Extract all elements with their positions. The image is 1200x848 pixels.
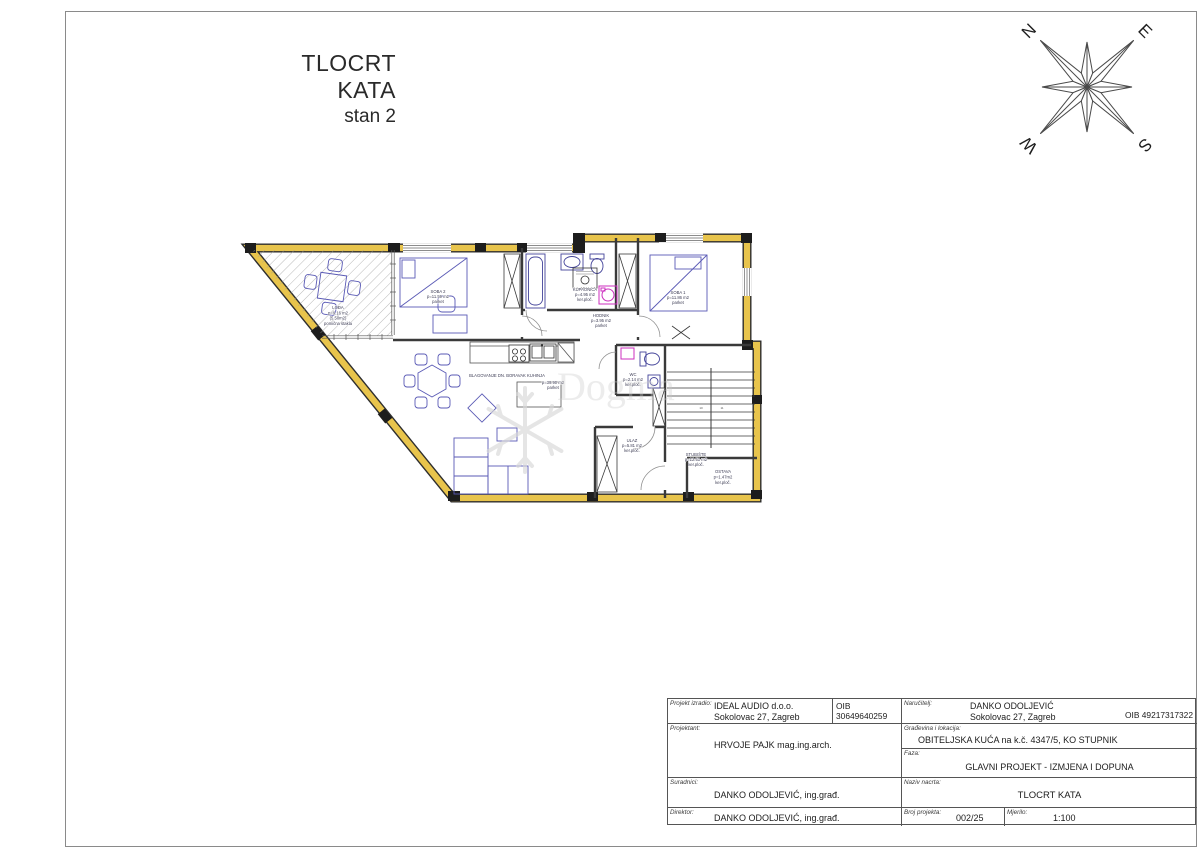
svg-text:parket: parket — [672, 300, 684, 305]
svg-text:pomična stakla: pomična stakla — [324, 321, 353, 326]
cell-projektant: Projektant: HRVOJE PAJK mag.ing.arch. — [668, 724, 902, 778]
compass-west-label: W — [1017, 133, 1042, 158]
cell-oib-izradio: OIB 30649640259 — [833, 699, 902, 724]
cell-naziv-nacrta: Naziv nacrta: TLOCRT KATA — [902, 778, 1197, 808]
loggia — [252, 250, 396, 340]
stair-number-1: 10 — [699, 406, 703, 410]
svg-text:parket: parket — [432, 299, 444, 304]
cell-broj-projekta: Broj projekta: 002/25 — [902, 808, 1005, 826]
room-label-ostava: OSTAVA — [715, 469, 731, 474]
cell-suradnici: Suradnici: DANKO ODOLJEVIĆ, ing.građ. — [668, 778, 902, 808]
cell-projekt-izradio: Projekt izradio: IDEAL AUDIO d.o.o. Soko… — [668, 699, 833, 724]
drawing-title: TLOCRT KATA stan 2 — [248, 50, 396, 128]
compass-north-label: N — [1018, 20, 1040, 42]
svg-text:ker.ploč.: ker.ploč. — [688, 462, 704, 467]
cell-direktor: Direktor: DANKO ODOLJEVIĆ, ing.građ. — [668, 808, 902, 826]
cell-faza: Faza: GLAVNI PROJEKT - IZMJENA I DOPUNA — [902, 749, 1197, 778]
drawing-title-sub: stan 2 — [248, 106, 396, 128]
room-label-loda: LOĐA — [332, 305, 344, 310]
stair-number-2: 11 — [720, 406, 723, 410]
cell-gradevina: Građevina i lokacija: OBITELJSKA KUĆA na… — [902, 724, 1197, 749]
cell-mjerilo: Mjerilo: 1:100 — [1005, 808, 1197, 826]
drawing-title-main: TLOCRT KATA — [248, 50, 396, 104]
svg-text:(5.50m2): (5.50m2) — [330, 316, 347, 321]
svg-text:ker.ploč.: ker.ploč. — [624, 448, 640, 453]
watermark-text: Dogma — [557, 364, 675, 409]
cell-narucitelj: Naručitelj: DANKO ODOLJEVIĆ Sokolovac 27… — [902, 699, 1197, 724]
drawing-sheet: { "title": {"main": "TLOCRT KATA", "sub"… — [0, 0, 1200, 848]
svg-text:ker.ploč.: ker.ploč. — [715, 480, 731, 485]
compass-star — [1040, 40, 1133, 133]
compass-south-label: S — [1134, 134, 1155, 155]
svg-text:ker.ploč.: ker.ploč. — [577, 297, 593, 302]
floor-plan: 10 11 — [235, 230, 765, 522]
svg-text:parket: parket — [595, 323, 607, 328]
compass-east-label: E — [1134, 20, 1155, 41]
kitchen-counter — [470, 342, 574, 363]
compass-rose: N E W S — [1008, 8, 1166, 166]
room-label-dnevni: BLAGOVANJE DN. BORAVAK KUHINJA — [469, 373, 545, 378]
title-block: Projekt izradio: IDEAL AUDIO d.o.o. Soko… — [667, 698, 1196, 825]
svg-text:p=1.47m2: p=1.47m2 — [714, 475, 733, 480]
